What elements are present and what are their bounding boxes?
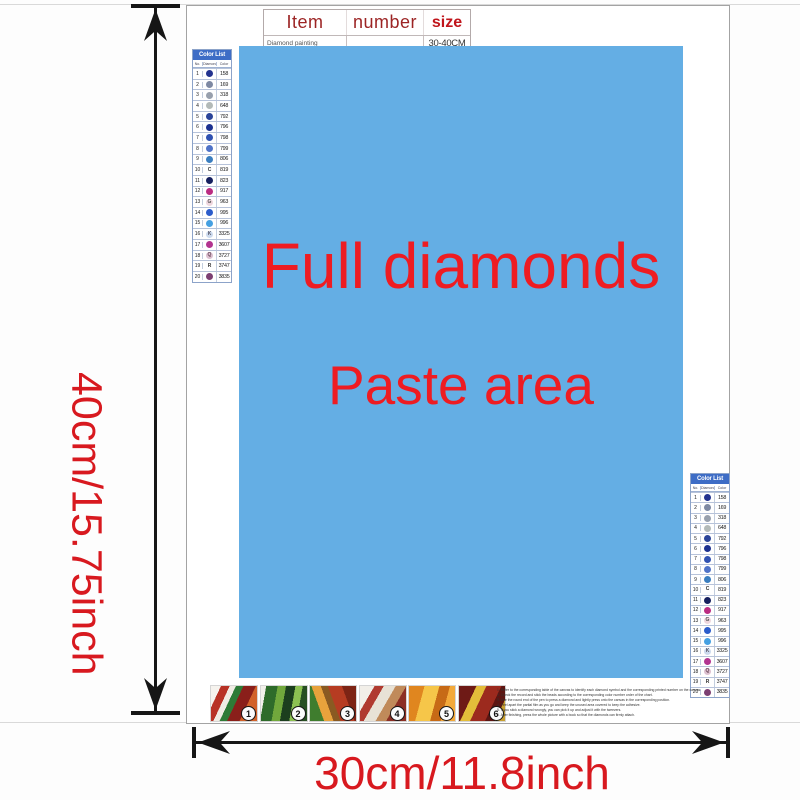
diamond-symbol-icon (701, 688, 715, 697)
diamond-dot (206, 70, 213, 77)
color-list-row: 15 996 (193, 218, 231, 229)
dmc-code: 3727 (715, 669, 729, 675)
color-list-row: 12 917 (193, 186, 231, 197)
row-number: 3 (691, 515, 701, 521)
dmc-code: 799 (715, 566, 729, 572)
diamond-symbol-icon (203, 90, 217, 100)
diamond-symbol-icon (701, 606, 715, 615)
color-list-row: 3 318 (193, 89, 231, 100)
color-list-row: 8 799 (193, 143, 231, 154)
color-list-right: Color List No. Diamond Color 1 158 (690, 473, 730, 698)
row-number: 18 (193, 253, 203, 259)
dmc-code: 3835 (217, 274, 231, 280)
color-list-row: 11 823 (193, 175, 231, 186)
diamond-dot (206, 124, 213, 131)
diamond-symbol-icon (203, 176, 217, 186)
color-list-row: 5 792 (691, 533, 729, 543)
color-list-row: 2 169 (691, 502, 729, 512)
diamond-symbol-icon (701, 524, 715, 533)
diamond-symbol-icon (203, 144, 217, 154)
dmc-code: 3607 (217, 242, 231, 248)
color-list-row: 3 318 (691, 513, 729, 523)
diamond-dot (206, 134, 213, 141)
diamond-dot (704, 627, 711, 634)
dmc-code: 963 (715, 618, 729, 624)
diamond-symbol-icon (203, 101, 217, 111)
dmc-code: 3747 (217, 263, 231, 269)
row-number: 1 (193, 71, 203, 77)
diamond-symbol-icon (203, 187, 217, 197)
color-list-row: 12 917 (691, 605, 729, 615)
diamond-dot (704, 494, 711, 501)
diamond-symbol-icon (701, 493, 715, 502)
color-list-row: 1 158 (691, 492, 729, 502)
dmc-code: 995 (715, 628, 729, 634)
diamond-dot (704, 556, 711, 563)
diamond-dot (704, 535, 711, 542)
color-list-row: 9 806 (193, 154, 231, 165)
row-number: 8 (193, 146, 203, 152)
row-number: 11 (193, 178, 203, 184)
color-list-row: 14 995 (193, 207, 231, 218)
diamond-dot (704, 576, 711, 583)
color-list-row: 4 648 (691, 523, 729, 533)
color-list-row: 16 K 3325 (193, 228, 231, 239)
instructions-fine-print: 1. Refer to the corresponding table of t… (497, 688, 701, 718)
dmc-code: 648 (715, 525, 729, 531)
diamond-dot (206, 92, 213, 99)
diamond-dot (206, 81, 213, 88)
color-list-row: 1 158 (193, 68, 231, 79)
step-thumbnail: 3 (309, 685, 357, 722)
row-number: 7 (193, 135, 203, 141)
diamond-symbol-icon (203, 69, 217, 79)
diamond-dot (704, 597, 711, 604)
dmc-code: 158 (715, 495, 729, 501)
diamond-dot: G (704, 617, 711, 624)
dmc-code: 796 (715, 546, 729, 552)
dmc-code: 169 (217, 82, 231, 88)
step-thumbnails: 1 2 3 4 5 (210, 685, 506, 722)
color-list-row: 7 798 (193, 132, 231, 143)
color-list-row: 6 796 (691, 543, 729, 553)
diamond-dot (206, 145, 213, 152)
color-list-row: 10 C 819 (193, 164, 231, 175)
color-list-row: 14 995 (691, 625, 729, 635)
step-number-badge: 3 (340, 706, 355, 721)
step-number-badge: 1 (241, 706, 256, 721)
color-list-row: 18 Q 3727 (691, 666, 729, 676)
dmc-code: 798 (715, 556, 729, 562)
horizontal-dimension-line (196, 741, 726, 744)
dmc-code: 318 (217, 92, 231, 98)
col-no: No. (691, 486, 701, 490)
dmc-code: 917 (217, 188, 231, 194)
col-no: No. (193, 62, 203, 66)
dmc-code: 648 (217, 103, 231, 109)
step-thumbnail: 2 (260, 685, 308, 722)
diamond-symbol-icon (203, 208, 217, 218)
vertical-dimension-cap-top (131, 4, 180, 8)
diamond-symbol-icon: R (701, 678, 715, 687)
canvas-sheet: Item number size Diamond painting 30-40C… (186, 5, 730, 724)
color-list-row: 2 169 (193, 79, 231, 90)
row-number: 17 (193, 242, 203, 248)
dmc-code: 799 (217, 146, 231, 152)
row-number: 10 (691, 587, 701, 593)
dmc-code: 318 (715, 515, 729, 521)
row-number: 17 (691, 659, 701, 665)
dmc-code: 806 (217, 156, 231, 162)
color-list-row: 8 799 (691, 564, 729, 574)
diamond-dot: K (206, 231, 213, 238)
diamond-dot (206, 113, 213, 120)
col-diamond: Diamond (701, 486, 715, 490)
row-number: 10 (193, 167, 203, 173)
diamond-dot (206, 156, 213, 163)
color-list-row: 13 G 963 (193, 196, 231, 207)
row-number: 4 (193, 103, 203, 109)
row-number: 15 (193, 220, 203, 226)
dmc-code: 963 (217, 199, 231, 205)
step-number-badge: 2 (291, 706, 306, 721)
color-list-row: 10 C 819 (691, 584, 729, 594)
row-number: 5 (193, 114, 203, 120)
diamond-symbol-icon (701, 534, 715, 543)
diamond-painting-size-diagram: Item number size Diamond painting 30-40C… (0, 0, 800, 800)
vertical-dimension-line (154, 8, 157, 712)
dmc-code: 796 (217, 124, 231, 130)
dmc-code: 806 (715, 577, 729, 583)
dmc-code: 792 (217, 114, 231, 120)
color-list-row: 11 823 (691, 595, 729, 605)
color-list-row: 5 792 (193, 111, 231, 122)
diamond-dot (704, 607, 711, 614)
diamond-symbol-icon (701, 544, 715, 553)
color-list-row: 13 G 963 (691, 615, 729, 625)
row-number: 4 (691, 525, 701, 531)
dmc-code: 792 (715, 536, 729, 542)
row-number: 15 (691, 638, 701, 644)
diamond-symbol-icon (701, 657, 715, 666)
size-header: size (424, 10, 470, 35)
row-number: 6 (691, 546, 701, 552)
col-color: Color (217, 62, 231, 66)
item-table-header-row: Item number size (264, 10, 470, 35)
diamond-dot (704, 658, 711, 665)
diamond-symbol-icon: Q (701, 667, 715, 676)
diamond-symbol-icon (701, 503, 715, 512)
step-number-badge: 5 (439, 706, 454, 721)
color-list-row: 7 798 (691, 554, 729, 564)
diamond-symbol-icon: Q (203, 251, 217, 261)
diamond-dot: R (206, 263, 213, 270)
diamond-symbol-icon (203, 272, 217, 282)
row-number: 3 (193, 92, 203, 98)
row-number: 13 (193, 199, 203, 205)
color-list-title: Color List (193, 50, 231, 60)
dmc-code: 3325 (217, 231, 231, 237)
dmc-code: 996 (217, 220, 231, 226)
vertical-dimension-cap-bottom (131, 711, 180, 715)
diamond-symbol-icon (701, 514, 715, 523)
row-number: 2 (691, 505, 701, 511)
diamond-dot: C (206, 167, 213, 174)
dmc-code: 3727 (217, 253, 231, 259)
dmc-code: 917 (715, 607, 729, 613)
diamond-symbol-icon: K (203, 229, 217, 239)
diamond-dot (704, 504, 711, 511)
diamond-dot (206, 241, 213, 248)
color-list-row: 16 K 3325 (691, 646, 729, 656)
row-number: 14 (691, 628, 701, 634)
color-list-row: 20 3835 (193, 271, 231, 282)
row-number: 9 (193, 156, 203, 162)
diamond-dot (206, 102, 213, 109)
row-number: 12 (193, 188, 203, 194)
diamond-dot (704, 689, 711, 696)
diamond-dot: Q (206, 252, 213, 259)
number-header: number (347, 10, 424, 35)
row-number: 9 (691, 577, 701, 583)
diamond-dot (206, 188, 213, 195)
item-header: Item (264, 10, 347, 35)
diamond-symbol-icon: G (701, 616, 715, 625)
row-number: 5 (691, 536, 701, 542)
color-list-row: 17 3607 (691, 656, 729, 666)
color-list-row: 4 648 (193, 100, 231, 111)
row-number: 11 (691, 597, 701, 603)
color-list-title: Color List (691, 474, 729, 484)
row-number: 6 (193, 124, 203, 130)
row-number: 19 (193, 263, 203, 269)
diamond-dot: C (704, 586, 711, 593)
color-list-row: 18 Q 3727 (193, 250, 231, 261)
color-list-row: 19 R 3747 (691, 677, 729, 687)
row-number: 18 (691, 669, 701, 675)
row-number: 7 (691, 556, 701, 562)
row-number: 14 (193, 210, 203, 216)
step-thumbnail: 5 (408, 685, 456, 722)
row-number: 8 (691, 566, 701, 572)
step-thumbnail: 4 (359, 685, 407, 722)
row-number: 19 (691, 679, 701, 685)
row-number: 12 (691, 607, 701, 613)
diamond-symbol-icon: C (701, 585, 715, 594)
row-number: 1 (691, 495, 701, 501)
diamond-symbol-icon: G (203, 197, 217, 207)
row-number: 13 (691, 618, 701, 624)
diamond-dot (206, 273, 213, 280)
dmc-code: 3835 (715, 689, 729, 695)
paste-area: Full diamonds Paste area (239, 46, 683, 678)
diamond-symbol-icon: C (203, 165, 217, 175)
row-number: 16 (193, 231, 203, 237)
dmc-code: 3607 (715, 659, 729, 665)
dmc-code: 169 (715, 505, 729, 511)
diamond-symbol-icon (701, 565, 715, 574)
col-color: Color (715, 486, 729, 490)
diamond-dot (206, 209, 213, 216)
diamond-dot (704, 525, 711, 532)
fine-print-line: 6. After finishing, press the whole pict… (497, 713, 701, 718)
color-list-row: 17 3607 (193, 239, 231, 250)
diamond-symbol-icon (203, 219, 217, 229)
diamond-dot: K (704, 648, 711, 655)
diamond-symbol-icon (701, 637, 715, 646)
diamond-symbol-icon (701, 626, 715, 635)
diamond-symbol-icon: K (701, 647, 715, 656)
dmc-code: 995 (217, 210, 231, 216)
color-list-row: 9 806 (691, 574, 729, 584)
dmc-code: 823 (715, 597, 729, 603)
dmc-code: 798 (217, 135, 231, 141)
diamond-dot (704, 515, 711, 522)
row-number: 2 (193, 82, 203, 88)
color-list-row: 15 996 (691, 636, 729, 646)
paste-area-title-line1: Full diamonds (239, 229, 683, 303)
color-list-left: Color List No. Diamond Color 1 158 (192, 49, 232, 283)
diamond-symbol-icon: R (203, 261, 217, 271)
horizontal-dimension-cap-left (192, 727, 196, 758)
diamond-symbol-icon (203, 112, 217, 122)
dmc-code: 158 (217, 71, 231, 77)
col-diamond: Diamond (203, 62, 217, 66)
diamond-dot (704, 638, 711, 645)
diamond-symbol-icon (203, 122, 217, 132)
diamond-dot (206, 177, 213, 184)
row-number: 16 (691, 648, 701, 654)
dmc-code: 3747 (715, 679, 729, 685)
color-list-row: 6 796 (193, 121, 231, 132)
diamond-symbol-icon (203, 80, 217, 90)
dmc-code: 819 (715, 587, 729, 593)
diamond-dot: G (206, 199, 213, 206)
row-number: 20 (193, 274, 203, 280)
diamond-symbol-icon (701, 555, 715, 564)
diamond-symbol-icon (203, 133, 217, 143)
dmc-code: 996 (715, 638, 729, 644)
color-list-columns: No. Diamond Color (193, 60, 231, 68)
paste-area-title-line2: Paste area (239, 353, 683, 417)
diamond-dot (206, 220, 213, 227)
diamond-symbol-icon (203, 240, 217, 250)
color-list-row: 19 R 3747 (193, 260, 231, 271)
color-list-columns: No. Diamond Color (691, 484, 729, 492)
diamond-dot: R (704, 679, 711, 686)
dmc-code: 823 (217, 178, 231, 184)
diamond-symbol-icon (203, 155, 217, 165)
dmc-code: 819 (217, 167, 231, 173)
diamond-dot (704, 566, 711, 573)
diamond-symbol-icon (701, 596, 715, 605)
step-thumbnail: 1 (210, 685, 258, 722)
dmc-code: 3325 (715, 648, 729, 654)
horizontal-dimension-cap-right (726, 727, 730, 758)
diamond-dot (704, 545, 711, 552)
diamond-dot: Q (704, 668, 711, 675)
width-dimension-label: 30cm/11.8inch (262, 746, 662, 800)
step-number-badge: 4 (390, 706, 405, 721)
diamond-symbol-icon (701, 575, 715, 584)
